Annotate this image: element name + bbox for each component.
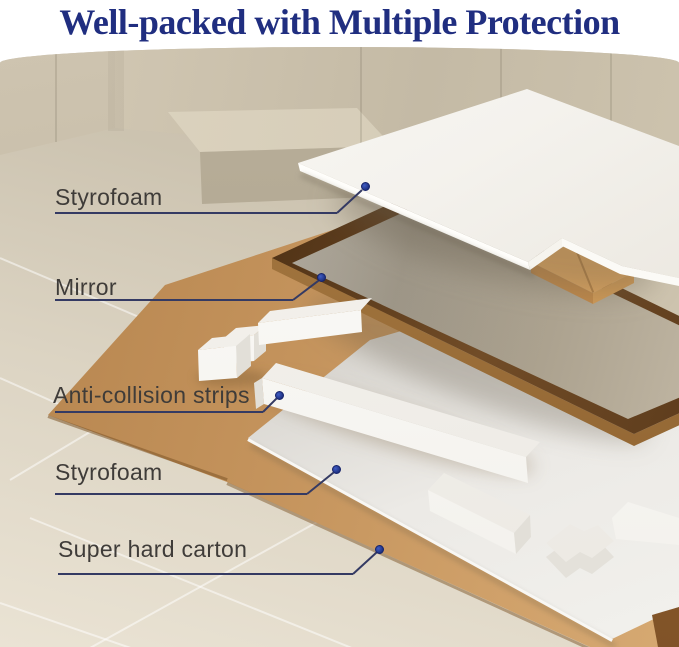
callout-label-styrofoam-bottom: Styrofoam <box>55 459 163 486</box>
leader-line <box>58 573 353 575</box>
leader-line <box>55 493 307 495</box>
leader-line <box>352 552 377 575</box>
page-title: Well-packed with Multiple Protection <box>0 1 679 43</box>
callout-dot <box>375 545 384 554</box>
leader-line <box>55 411 263 413</box>
product-photo: Styrofoam Mirror Anti-collision strips S… <box>0 47 679 647</box>
wall-grout-line <box>360 47 362 152</box>
callout-label-anti-collision: Anti-collision strips <box>53 382 250 409</box>
wall-grout-line <box>55 47 57 142</box>
callout-dot <box>275 391 284 400</box>
callout-dot <box>361 182 370 191</box>
floor-tile-seam <box>0 602 284 647</box>
leader-line <box>55 299 293 301</box>
callout-label-carton: Super hard carton <box>58 536 247 563</box>
callout-label-styrofoam-top: Styrofoam <box>55 184 163 211</box>
callout-dot <box>317 273 326 282</box>
leader-line <box>55 212 337 214</box>
callout-label-mirror: Mirror <box>55 274 117 301</box>
callout-dot <box>332 465 341 474</box>
